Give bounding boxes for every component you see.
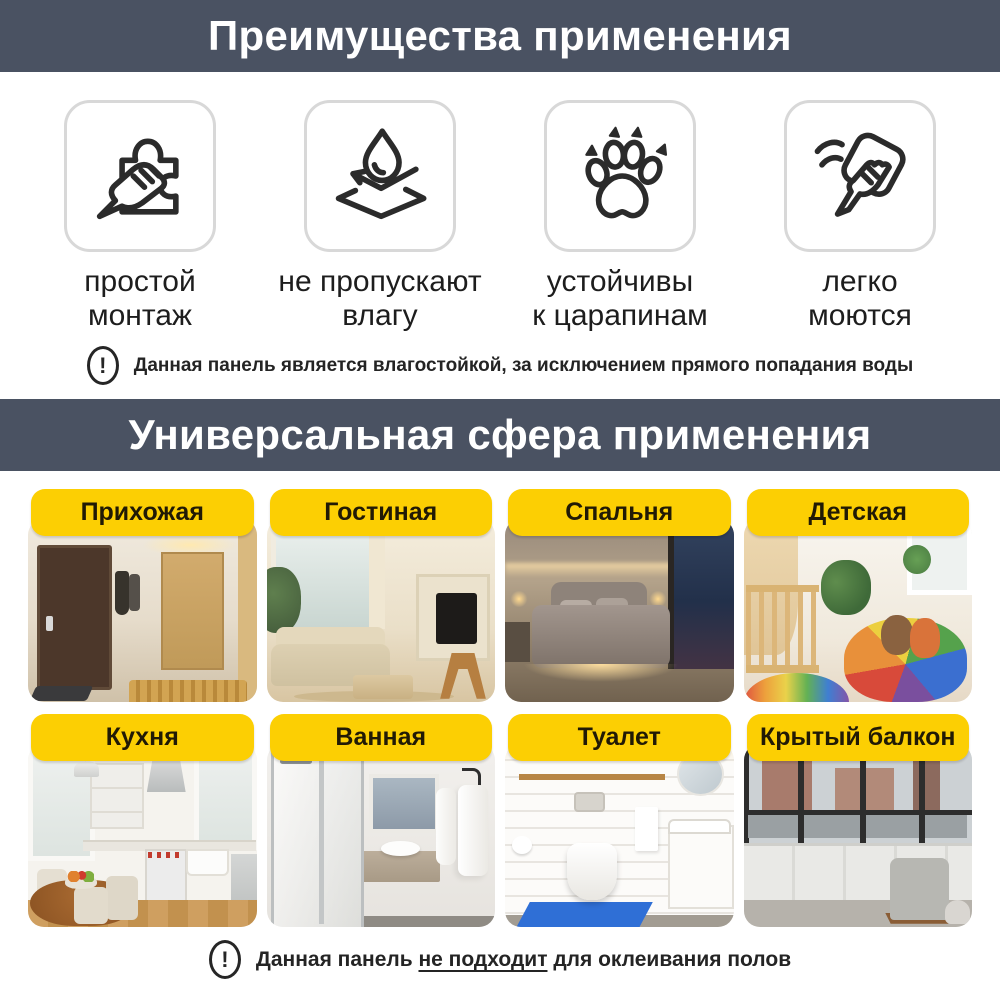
room-card-kitchen: Кухня bbox=[28, 714, 257, 927]
vanity-cabinet bbox=[668, 825, 734, 910]
room-card-bathroom: Ванная bbox=[267, 714, 496, 927]
photo-bedroom bbox=[505, 519, 734, 702]
towel bbox=[436, 788, 457, 865]
blue-mat bbox=[516, 902, 653, 928]
rainbow-rug bbox=[744, 673, 849, 702]
rooms-grid: Прихожая Гостиная bbox=[0, 471, 1000, 931]
room-label: Кухня bbox=[31, 714, 254, 761]
plant bbox=[903, 545, 930, 574]
wood-shelf bbox=[519, 774, 665, 780]
room-label: Прихожая bbox=[31, 489, 254, 536]
door-handle bbox=[46, 616, 53, 631]
photo-bathroom bbox=[267, 744, 496, 927]
bed bbox=[532, 605, 669, 667]
infographic-page: Преимущества применения простоймонтаж bbox=[0, 0, 1000, 1000]
benefit-label: легкомоются bbox=[808, 265, 912, 333]
firebox bbox=[436, 593, 477, 644]
nightstand bbox=[505, 622, 530, 662]
benefit-label: простоймонтаж bbox=[84, 265, 195, 333]
bench bbox=[129, 680, 248, 702]
street bbox=[748, 814, 967, 838]
exclamation-icon: ! bbox=[87, 346, 119, 385]
fruit bbox=[67, 871, 94, 882]
flush-plate bbox=[574, 792, 605, 812]
room-card-balcony: Крытый балкон bbox=[744, 714, 973, 927]
wall-panel bbox=[238, 519, 256, 702]
benefit-label: устойчивык царапинам bbox=[532, 265, 708, 333]
room-card-hallway: Прихожая bbox=[28, 489, 257, 702]
shower-glass bbox=[271, 748, 364, 927]
crib bbox=[746, 585, 819, 673]
basin bbox=[381, 841, 420, 856]
photo-living-room bbox=[267, 519, 496, 702]
room-label: Спальня bbox=[508, 489, 731, 536]
night-window bbox=[668, 519, 733, 669]
photo-kitchen bbox=[28, 744, 257, 927]
puzzle-hand-icon bbox=[64, 100, 216, 252]
photo-hallway bbox=[28, 519, 257, 702]
sink bbox=[186, 849, 229, 877]
photo-balcony bbox=[744, 744, 973, 927]
room-card-toilet: Туалет bbox=[505, 714, 734, 927]
wall-hung-toilet bbox=[567, 843, 617, 900]
header-advantages: Преимущества применения bbox=[0, 0, 1000, 72]
room-label: Ванная bbox=[270, 714, 493, 761]
plant bbox=[267, 567, 301, 633]
room-card-living: Гостиная bbox=[267, 489, 496, 702]
underglow bbox=[523, 664, 678, 682]
room-card-kids: Детская bbox=[744, 489, 973, 702]
towel-hook bbox=[462, 768, 481, 786]
note-floors: ! Данная панель не подходит для оклеиван… bbox=[0, 940, 1000, 979]
sink bbox=[668, 819, 731, 834]
doormat bbox=[29, 686, 93, 701]
benefit-easy-install: простоймонтаж bbox=[20, 100, 260, 333]
coat bbox=[115, 571, 129, 615]
curtain bbox=[369, 523, 385, 629]
towel bbox=[635, 807, 658, 851]
mirror bbox=[369, 774, 439, 833]
room-label: Крытый балкон bbox=[747, 714, 970, 761]
teddy-bear bbox=[881, 615, 913, 655]
photo-toilet bbox=[505, 744, 734, 927]
room-card-bedroom: Спальня bbox=[505, 489, 734, 702]
benefit-scratch-resistant: устойчивык царапинам bbox=[500, 100, 740, 333]
glass-seam bbox=[319, 748, 324, 924]
plants bbox=[821, 560, 871, 615]
range-knobs bbox=[148, 852, 180, 857]
cove-light bbox=[505, 563, 674, 578]
header-advantages-title: Преимущества применения bbox=[208, 12, 792, 60]
pendant-lamp bbox=[74, 761, 99, 777]
exclamation-icon: ! bbox=[209, 940, 241, 979]
header-applications: Универсальная сфера применения bbox=[0, 399, 1000, 471]
note-moisture-text: Данная панель является влагостойкой, за … bbox=[134, 355, 913, 377]
side-table bbox=[945, 900, 970, 924]
wipe-cloth-icon bbox=[784, 100, 936, 252]
benefit-label: не пропускаютвлагу bbox=[278, 265, 481, 333]
window-transom bbox=[744, 810, 973, 815]
benefit-waterproof: не пропускаютвлагу bbox=[260, 100, 500, 333]
bedside-lamp bbox=[510, 591, 528, 607]
toilet-paper bbox=[512, 836, 533, 854]
towel bbox=[458, 785, 488, 877]
coffee-table bbox=[353, 675, 412, 699]
building bbox=[913, 754, 940, 814]
note-floors-text: Данная панель не подходит для оклеивания… bbox=[256, 948, 791, 972]
fox-toy bbox=[910, 618, 940, 658]
note-moisture: ! Данная панель является влагостойкой, з… bbox=[0, 346, 1000, 385]
floor bbox=[362, 916, 495, 927]
chair bbox=[106, 876, 138, 920]
wardrobe bbox=[161, 552, 224, 669]
paw-icon bbox=[544, 100, 696, 252]
photo-kids-room bbox=[744, 519, 973, 702]
building bbox=[762, 759, 812, 814]
benefit-easy-clean: легкомоются bbox=[740, 100, 980, 333]
water-drop-surface-icon bbox=[304, 100, 456, 252]
chair bbox=[74, 887, 108, 924]
room-label: Гостиная bbox=[270, 489, 493, 536]
room-label: Детская bbox=[747, 489, 970, 536]
header-applications-title: Универсальная сфера применения bbox=[129, 411, 872, 459]
room-label: Туалет bbox=[508, 714, 731, 761]
armchair bbox=[890, 858, 949, 920]
benefits-row: простоймонтаж не пропускаютвлагу bbox=[0, 72, 1000, 337]
underlined-text: не подходит bbox=[418, 948, 547, 971]
coat bbox=[129, 574, 140, 611]
